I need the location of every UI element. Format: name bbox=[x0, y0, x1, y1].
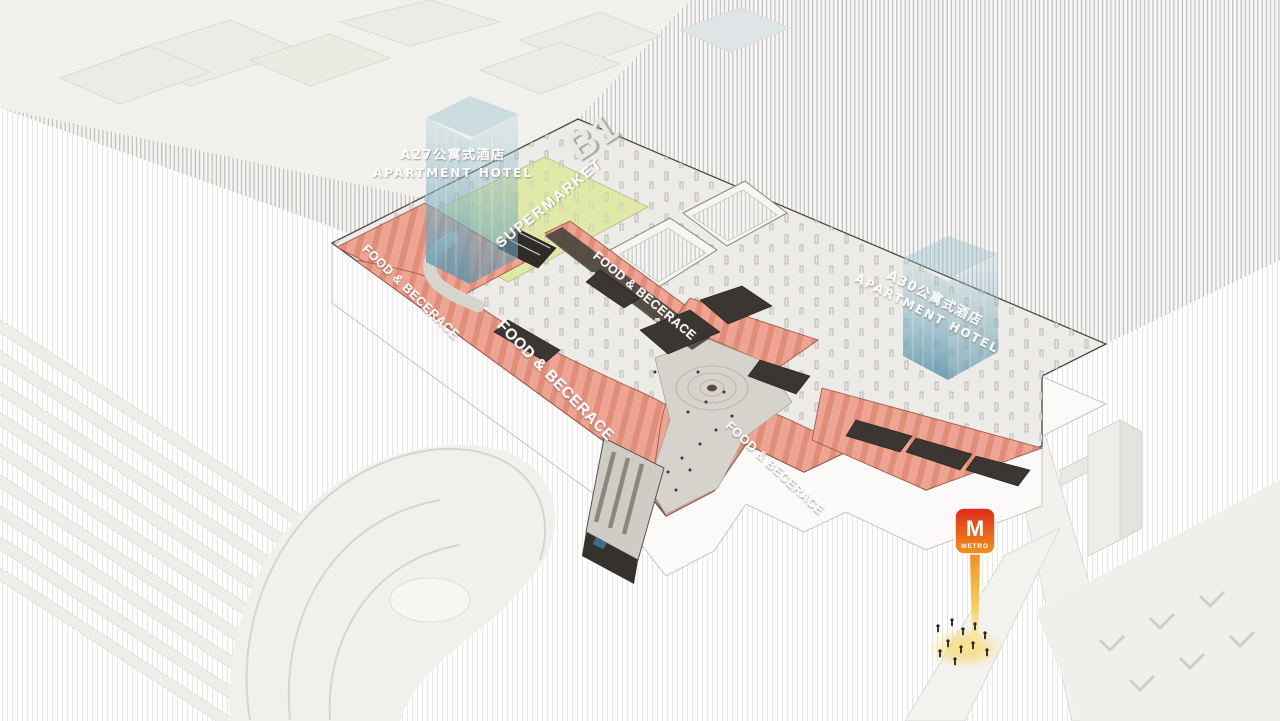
label-hotel-a27-zh: A27公寓式酒店 bbox=[400, 147, 505, 163]
label-hotel-a27-en: APARTMENT HOTEL bbox=[373, 166, 533, 180]
axonometric-mall-diagram: B1 FOOD & BECERACE FOOD & BECERACE FOOD … bbox=[0, 0, 1280, 721]
plaza-sculpture bbox=[707, 385, 717, 392]
metro-caption: METRO bbox=[961, 543, 988, 550]
metro-glow bbox=[927, 627, 1003, 669]
metro-m-icon: M bbox=[966, 516, 984, 541]
metro-sign: M METRO bbox=[955, 508, 995, 554]
